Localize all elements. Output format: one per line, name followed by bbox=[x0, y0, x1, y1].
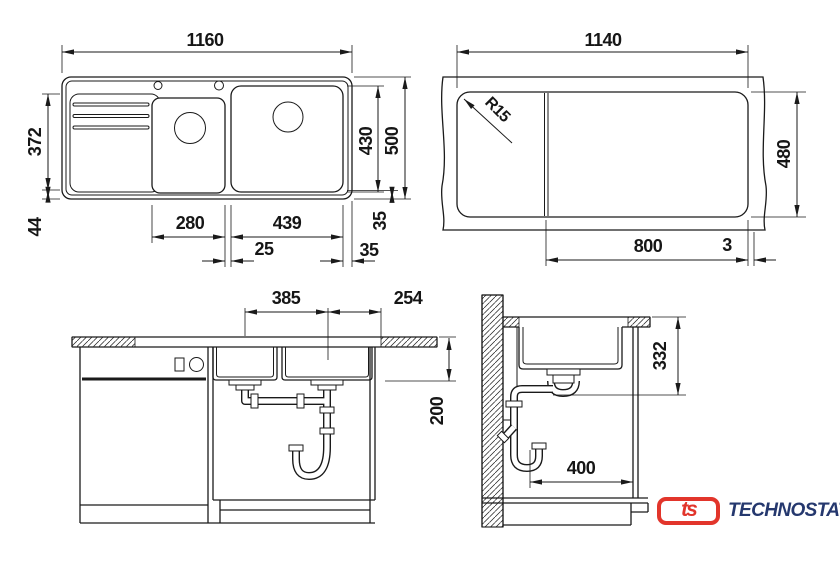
tap-hole bbox=[154, 82, 162, 90]
large-bowl-drain bbox=[273, 102, 303, 132]
pipe-coupling bbox=[506, 401, 522, 407]
pipe-coupling bbox=[251, 394, 258, 408]
dim-trap-clearance-label: 400 bbox=[567, 458, 596, 478]
countertop-hatch bbox=[503, 317, 519, 327]
bowl-section-inner bbox=[523, 327, 618, 364]
bowl-section-outer bbox=[519, 327, 622, 369]
dim-rear-margin-label: 35 bbox=[370, 211, 390, 231]
logo-text: TECHNOSTATUS bbox=[728, 500, 840, 522]
pipe-coupling bbox=[297, 394, 304, 408]
dim-side-margin-label: 35 bbox=[359, 240, 379, 260]
pipe-coupling bbox=[289, 445, 303, 451]
dim-cutout-width-label: 1140 bbox=[584, 30, 622, 50]
drain-body bbox=[553, 375, 574, 383]
dim-bowl-gap-label: 25 bbox=[254, 239, 274, 259]
dim-cutout-depth-label: 480 bbox=[774, 139, 794, 168]
cabinet-side bbox=[633, 327, 638, 498]
drawing-canvas: 1160 372 44 430 500 35 35 280 439 25 114… bbox=[0, 0, 840, 566]
left-bowl-section bbox=[213, 347, 277, 380]
left-bowl-inner bbox=[217, 347, 274, 377]
left-drain-flange bbox=[229, 380, 261, 385]
small-bowl-drain bbox=[175, 113, 206, 144]
technostatus-logo: ts TECHNOSTATUS bbox=[657, 497, 840, 525]
dishwasher-display bbox=[175, 358, 184, 371]
cabinet-base bbox=[482, 498, 648, 525]
dim-edge-gap-label: 3 bbox=[722, 235, 732, 255]
left-drain-body bbox=[236, 385, 254, 390]
right-drain-body bbox=[318, 385, 336, 390]
dim-bowl-depth-label: 200 bbox=[427, 396, 447, 425]
view-cutout: 1140 R15 480 800 3 bbox=[442, 30, 806, 266]
sink-cabinet bbox=[213, 347, 375, 523]
view-sink-top: 1160 372 44 430 500 35 35 280 439 25 bbox=[25, 30, 411, 267]
dim-bowl-area-depth-label: 430 bbox=[356, 126, 376, 155]
pipe-coupling bbox=[320, 407, 334, 413]
technical-drawing-sheet: 1160 372 44 430 500 35 35 280 439 25 114… bbox=[0, 0, 840, 566]
wall-hatch bbox=[482, 295, 503, 527]
dim-drainboard-depth-label: 372 bbox=[25, 127, 45, 156]
countertop-hatch bbox=[628, 317, 650, 327]
pipe-coupling bbox=[320, 428, 334, 434]
dim-bowl-span-label: 385 bbox=[272, 288, 301, 308]
dishwasher-knob bbox=[190, 358, 204, 372]
dim-right-offset-label: 254 bbox=[394, 288, 423, 308]
dim-small-bowl-label: 280 bbox=[176, 213, 205, 233]
dim-overall-depth-label: 500 bbox=[382, 126, 402, 155]
countertop-hatch bbox=[72, 337, 135, 347]
right-bowl-section bbox=[282, 347, 372, 380]
countertop-hatch bbox=[381, 337, 437, 347]
view-front: 385 254 200 bbox=[72, 288, 456, 523]
dim-drain-height-label: 332 bbox=[650, 341, 670, 370]
dim-bowl-section-label: 800 bbox=[634, 236, 663, 256]
dim-overall-width-label: 1160 bbox=[186, 30, 224, 50]
pipe-coupling bbox=[532, 443, 546, 449]
right-drain-flange bbox=[311, 380, 343, 385]
drainboard-groove bbox=[73, 103, 149, 106]
dim-front-edge-label: 44 bbox=[25, 217, 45, 237]
dim-corner-radius-label: R15 bbox=[481, 94, 513, 126]
view-side: 332 400 bbox=[482, 295, 686, 527]
right-bowl-inner bbox=[286, 347, 369, 377]
logo-badge-text: ts bbox=[681, 498, 696, 522]
tap-hole bbox=[215, 81, 224, 90]
drainboard-groove bbox=[73, 115, 149, 118]
drain-flange bbox=[547, 369, 580, 375]
drainboard bbox=[70, 94, 160, 192]
drainboard-groove bbox=[73, 126, 149, 129]
dim-large-bowl-label: 439 bbox=[273, 213, 302, 233]
logo-badge: ts bbox=[657, 497, 720, 525]
extension-lines bbox=[457, 45, 806, 266]
